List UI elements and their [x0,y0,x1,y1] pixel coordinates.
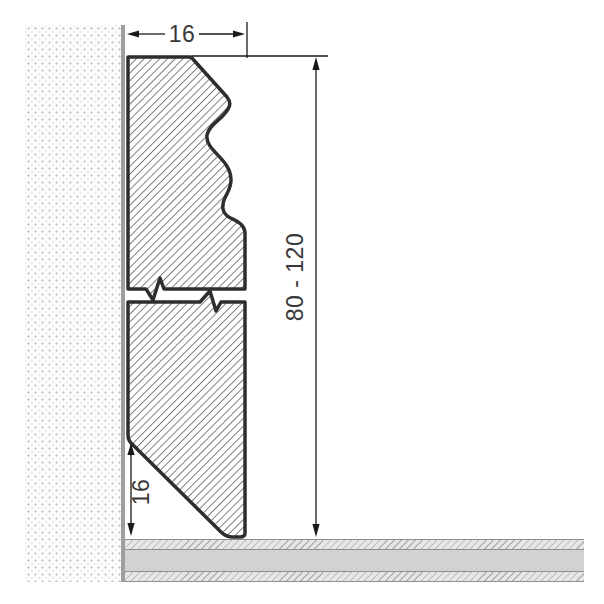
bevel-dimension-label: 16 [128,479,154,506]
height-arrow-top [312,57,319,70]
profile-and-dimensions-layer: 16 80 - 120 16 [0,0,604,604]
bevel-arrow-bottom [127,523,134,536]
width-arrow-right [233,31,245,38]
height-dimension-label: 80 - 120 [282,233,308,321]
technical-drawing-canvas: 16 80 - 120 16 [0,0,604,604]
width-dimension-label: 16 [169,21,196,47]
skirting-profile-upper-section [128,57,245,300]
height-arrow-bottom [312,524,319,537]
width-arrow-left [127,31,139,38]
